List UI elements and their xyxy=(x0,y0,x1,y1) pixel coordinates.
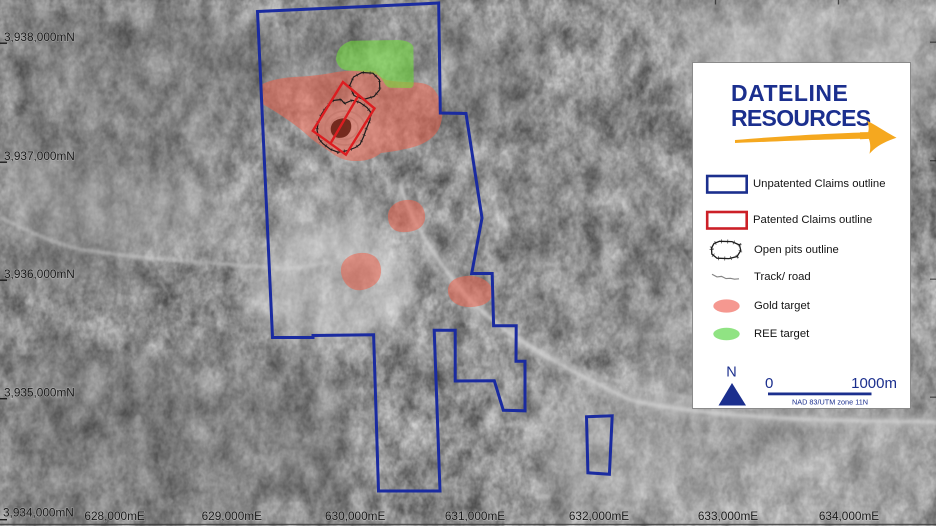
svg-text:631,000mE: 631,000mE xyxy=(445,509,505,523)
svg-text:634,000mE: 634,000mE xyxy=(819,509,879,523)
svg-text:3,937,000mN: 3,937,000mN xyxy=(4,149,75,163)
svg-text:3,935,000mN: 3,935,000mN xyxy=(4,386,75,400)
svg-text:3,938,000mN: 3,938,000mN xyxy=(4,30,75,44)
svg-text:628,000mE: 628,000mE xyxy=(84,509,144,523)
svg-text:632,000mE: 632,000mE xyxy=(569,509,629,523)
svg-text:NAD 83/UTM zone 11N: NAD 83/UTM zone 11N xyxy=(792,398,868,407)
svg-text:633,000mE: 633,000mE xyxy=(698,509,758,523)
svg-text:0: 0 xyxy=(765,375,773,392)
svg-text:630,000mE: 630,000mE xyxy=(325,509,385,523)
svg-text:3,936,000mN: 3,936,000mN xyxy=(4,267,75,281)
svg-text:1000m: 1000m xyxy=(851,375,897,392)
svg-text:629,000mE: 629,000mE xyxy=(202,509,262,523)
svg-text:N: N xyxy=(726,365,736,381)
svg-text:3,934,000mN: 3,934,000mN xyxy=(3,506,74,520)
